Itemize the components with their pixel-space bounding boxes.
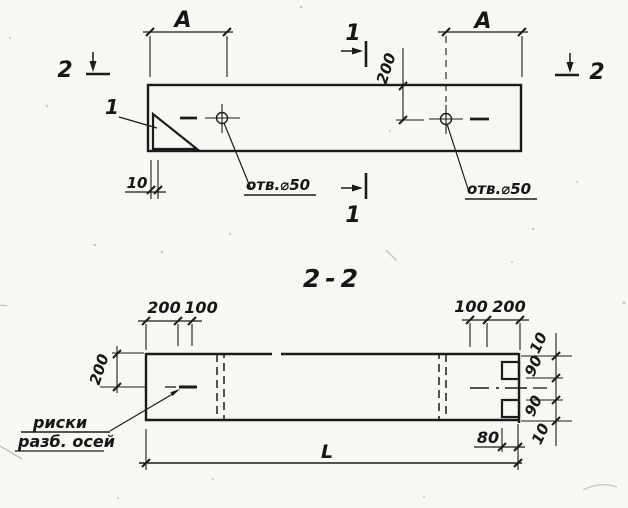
leader-line (447, 124, 469, 192)
beam-outline (148, 85, 521, 151)
scan-mark (0, 305, 7, 306)
detail-ref-1: 1 (105, 95, 157, 128)
dim-200-label: 200 (373, 51, 400, 86)
dim-a-right: A (438, 9, 528, 102)
hole-note-right-label: отв.⌀50 (467, 180, 531, 198)
hole-right (429, 105, 489, 134)
dim-left-100-label: 100 (184, 298, 217, 317)
section-2-label: 2 (589, 60, 604, 85)
dims-top-left: 200 100 (138, 298, 218, 350)
section-marker-1-top: 1 (341, 21, 366, 67)
dims-top-right: 100 200 (454, 297, 529, 350)
arrowhead (352, 185, 363, 192)
break-lines (217, 354, 446, 420)
dim-90-lower-label: 90 (521, 393, 546, 420)
axis-note-line1: риски (32, 413, 87, 432)
hole-note-left: отв.⌀50 (224, 123, 316, 195)
dim-left-200-label: 200 (147, 298, 180, 317)
dim-10-label: 10 (127, 174, 148, 192)
dim-10-top-label: 10 (526, 330, 551, 357)
dim-length: L (139, 429, 522, 470)
dim-a-right-label: A (472, 9, 491, 34)
dim-right-200-label: 200 (492, 297, 525, 316)
section-1-label: 1 (345, 21, 360, 46)
section-marker-1-bottom: 1 (341, 173, 366, 228)
dim-200-section: 200 (86, 346, 147, 393)
dim-80-label: 80 (477, 428, 499, 447)
leader-line (110, 392, 176, 431)
dim-a-left: A (143, 8, 233, 77)
dim-90-upper-label: 90 (521, 353, 546, 380)
scan-noise (0, 6, 625, 499)
leader-line (119, 117, 157, 128)
hole-left (180, 104, 240, 133)
plan-view: A A 200 1 (57, 8, 604, 228)
hole-note-left-label: отв.⌀50 (246, 176, 310, 194)
dim-a-left-label: A (172, 8, 191, 33)
section-beam-outline (145, 353, 520, 423)
dim-10-plan: 10 (125, 160, 166, 199)
notch-upper (502, 362, 519, 379)
scan-mark (583, 485, 617, 490)
dim-10-bottom-label: 10 (528, 421, 553, 448)
hole-note-right: отв.⌀50 (447, 124, 537, 199)
section-title: 2-2 (303, 264, 363, 293)
scan-mark (386, 250, 397, 261)
section-1-label: 1 (345, 203, 360, 228)
dim-length-label: L (321, 441, 333, 463)
section-2-label: 2 (57, 58, 72, 83)
axis-note-line2: разб. осей (17, 432, 115, 451)
detail-ref-label: 1 (105, 95, 119, 119)
dim-right-100-label: 100 (454, 297, 487, 316)
dim-200-side-label: 200 (86, 352, 113, 387)
arrowhead (90, 61, 97, 72)
section-marker-2-right: 2 (555, 53, 605, 85)
arrowhead (567, 62, 574, 73)
notch-lower (502, 400, 519, 417)
section-marker-2-left: 2 (57, 52, 110, 83)
arrowhead (352, 48, 363, 55)
technical-drawing: A A 200 1 (0, 0, 628, 508)
section-view: 2-2 (15, 264, 572, 470)
